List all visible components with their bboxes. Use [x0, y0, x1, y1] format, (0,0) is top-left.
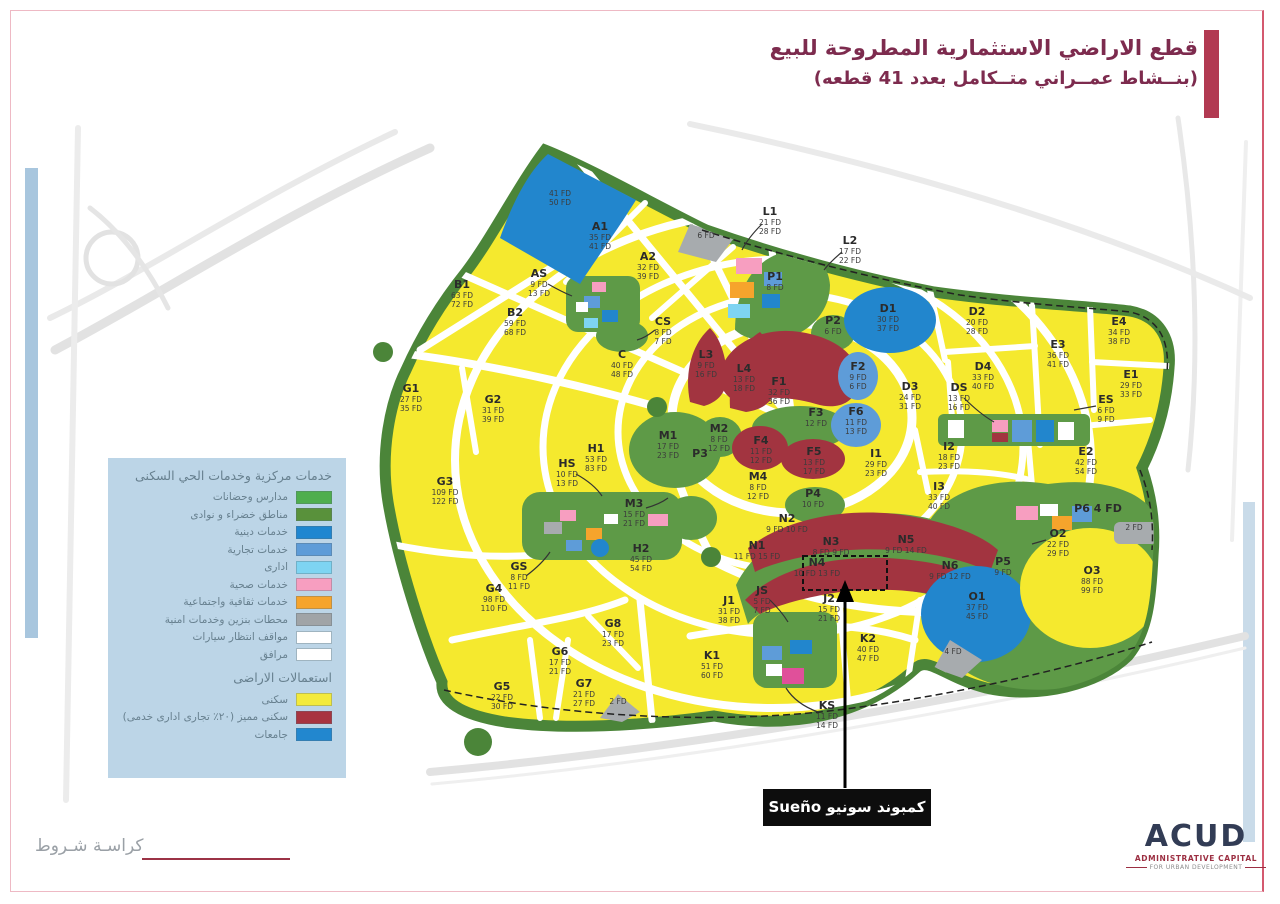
- plot-text: 47 FD: [857, 654, 879, 663]
- plot-text: 31 FD: [899, 402, 921, 411]
- plot-label-M3: M315 FD21 FD: [623, 497, 645, 528]
- plot-text: 29 FD: [1047, 549, 1069, 558]
- plot-text: M2: [710, 422, 729, 435]
- legend-item: مرافق: [120, 648, 332, 661]
- plot-text: 16 FD: [695, 370, 717, 379]
- plot-text: 39 FD: [637, 272, 659, 281]
- plot-text: 17 FD: [657, 442, 679, 451]
- plot-text: HS: [558, 457, 575, 470]
- plot-text: B1: [454, 278, 470, 291]
- plot-text: N1: [749, 539, 766, 552]
- plot-text: K2: [860, 632, 876, 645]
- plot-text: P6 4 FD: [1074, 502, 1122, 515]
- plot-text: 13 FD: [556, 479, 578, 488]
- plot-text: D3: [902, 380, 919, 393]
- plot-text: 38 FD: [718, 616, 740, 625]
- legend-item: سكنى: [120, 693, 332, 706]
- plot-text: 23 FD: [657, 451, 679, 460]
- legend-item: جامعات: [120, 728, 332, 741]
- plot-text: 35 FD: [589, 233, 611, 242]
- color-swatch: [296, 728, 332, 741]
- plot-text: 21 FD: [818, 614, 840, 623]
- plot-text: 53 FD: [585, 455, 607, 464]
- plot-text: D1: [880, 302, 897, 315]
- plot-text: 11 FD: [845, 418, 867, 427]
- plot-label-X2: 2 FD: [609, 697, 626, 706]
- plot-label-GS: GS8 FD11 FD: [508, 560, 530, 591]
- plot-text: 63 FD: [451, 291, 473, 300]
- plot-text: 12 FD: [805, 419, 827, 428]
- legend-section2-header: استعمالات الاراضى: [120, 670, 332, 687]
- plot-text: 37 FD: [877, 324, 899, 333]
- plot-label-G2: G231 FD39 FD: [482, 393, 504, 424]
- acud-logo-line2: FOR URBAN DEVELOPMENT: [1126, 864, 1266, 871]
- plot-label-U1: 41 FD50 FD: [549, 189, 571, 207]
- plot-text: 10 FD: [556, 470, 578, 479]
- plot-text: I1: [870, 447, 882, 460]
- plot-text: D2: [969, 305, 986, 318]
- plot-text: 31 FD: [482, 406, 504, 415]
- plot-text: P3: [692, 447, 708, 460]
- title-line1: قطع الاراضي الاستثمارية المطروحة للبيع: [770, 36, 1198, 60]
- plot-label-A1: A135 FD41 FD: [589, 220, 611, 251]
- plot-label-M2: M28 FD12 FD: [708, 422, 730, 453]
- legend-item: مواقف انتظار سيارات: [120, 631, 332, 644]
- plot-text: 41 FD: [1047, 360, 1069, 369]
- plot-text: 6 FD: [824, 327, 841, 336]
- plot-text: K1: [704, 649, 720, 662]
- plot-text: B2: [507, 306, 523, 319]
- plot-text: 8 FD: [510, 573, 527, 582]
- plot-label-M1: M117 FD23 FD: [657, 429, 679, 460]
- plot-text: L3: [699, 348, 714, 361]
- color-swatch: [296, 561, 332, 574]
- plot-label-K2: K240 FD47 FD: [857, 632, 879, 663]
- plot-text: 6 FD: [849, 382, 866, 391]
- plot-text: 21 FD: [759, 218, 781, 227]
- plot-text: 9 FD 12 FD: [929, 572, 971, 581]
- plot-text: 23 FD: [865, 469, 887, 478]
- plot-label-H2: H245 FD54 FD: [630, 542, 652, 573]
- plot-label-G8: G817 FD23 FD: [602, 617, 624, 648]
- plot-text: M3: [625, 497, 644, 510]
- plot-text: 41 FD: [549, 189, 571, 198]
- legend-item-label: مناطق خضراء و نوادى: [190, 509, 288, 521]
- legend-landuse-items: سكنىسكنى مميز (٢٠٪ تجارى ادارى خدمى)جامع…: [120, 693, 332, 741]
- plot-text: 37 FD: [966, 603, 988, 612]
- legend-services-items: مدارس وحضاناتمناطق خضراء و نوادىخدمات دي…: [120, 491, 332, 662]
- color-swatch: [296, 648, 332, 661]
- plot-text: 23 FD: [938, 462, 960, 471]
- plot-label-ES: ES6 FD9 FD: [1097, 393, 1114, 424]
- page-title: قطع الاراضي الاستثمارية المطروحة للبيع (…: [770, 36, 1198, 89]
- legend-item-label: خدمات ثقافية واجتماعية: [183, 596, 288, 608]
- plot-text: 122 FD: [432, 497, 459, 506]
- plot-text: 99 FD: [1081, 586, 1103, 595]
- plot-text: KS: [819, 699, 836, 712]
- plot-text: G1: [403, 382, 420, 395]
- plot-text: G4: [486, 582, 503, 595]
- plot-text: 22 FD: [839, 256, 861, 265]
- plot-text: 42 FD: [1075, 458, 1097, 467]
- plot-text: 9 FD: [994, 568, 1011, 577]
- legend-item-label: جامعات: [255, 729, 288, 741]
- plot-text: 32 FD: [768, 388, 790, 397]
- plot-label-O1: O137 FD45 FD: [966, 590, 988, 621]
- plot-text: 11 FD 15 FD: [734, 552, 781, 561]
- plot-text: 32 FD: [637, 263, 659, 272]
- legend-item: خدمات دينية: [120, 526, 332, 539]
- plot-text: 14 FD: [816, 721, 838, 730]
- plot-label-X4: 2 FD: [1125, 523, 1142, 532]
- plot-text: E2: [1078, 445, 1093, 458]
- plot-text: G6: [552, 645, 569, 658]
- plot-text: A1: [592, 220, 608, 233]
- plot-text: 6 FD: [1097, 406, 1114, 415]
- plot-text: 34 FD: [1108, 328, 1130, 337]
- plot-text: J1: [722, 594, 735, 607]
- plot-text: 17 FD: [839, 247, 861, 256]
- plot-text: D4: [975, 360, 992, 373]
- plot-text: 11 FD: [750, 447, 772, 456]
- plot-text: 2 FD: [609, 697, 626, 706]
- plot-label-D3: D324 FD31 FD: [899, 380, 921, 411]
- legend-item: خدمات ثقافية واجتماعية: [120, 596, 332, 609]
- plot-text: 13 FD: [803, 458, 825, 467]
- legend-item: سكنى مميز (٢٠٪ تجارى ادارى خدمى): [120, 711, 332, 724]
- plot-text: 22 FD: [1047, 540, 1069, 549]
- acud-logo-line1: ADMINISTRATIVE CAPITAL: [1126, 854, 1266, 863]
- legend-header: خدمات مركزية وخدمات الحي السكنى: [120, 468, 332, 485]
- plot-label-P6: P6 4 FD: [1074, 502, 1122, 515]
- color-swatch: [296, 693, 332, 706]
- plot-text: H1: [588, 442, 605, 455]
- plot-label-HS: HS10 FD13 FD: [556, 457, 578, 488]
- plot-label-P2: P26 FD: [824, 314, 841, 336]
- plot-text: 72 FD: [451, 300, 473, 309]
- plot-label-L1: L121 FD28 FD: [759, 205, 781, 236]
- plot-text: 88 FD: [1081, 577, 1103, 586]
- plot-text: 38 FD: [1108, 337, 1130, 346]
- plot-text: 4 FD: [944, 647, 961, 656]
- plot-text: 40 FD: [611, 361, 633, 370]
- highway-interchange-loop: [86, 232, 138, 284]
- plot-text: 33 FD: [1120, 390, 1142, 399]
- plot-text: 7 FD: [654, 337, 671, 346]
- plot-label-DS: DS13 FD16 FD: [948, 381, 970, 412]
- plot-text: CS: [655, 315, 671, 328]
- plot-text: 12 FD: [708, 444, 730, 453]
- legend-item: ادارى: [120, 561, 332, 574]
- plot-text: 39 FD: [482, 415, 504, 424]
- plot-label-P1: P18 FD: [766, 270, 783, 292]
- footer-signature-line: [142, 858, 290, 860]
- title-line2: (بنــشاط عمــراني متــكامل بعدد 41 قطعه): [770, 68, 1198, 89]
- plot-text: 17 FD: [549, 658, 571, 667]
- plot-text: F3: [808, 406, 823, 419]
- plot-label-G1: G127 FD35 FD: [400, 382, 422, 413]
- plot-label-X3: 4 FD: [944, 647, 961, 656]
- plot-label-H1: H153 FD83 FD: [585, 442, 607, 473]
- color-swatch: [296, 526, 332, 539]
- plot-text: 12 FD: [750, 456, 772, 465]
- plot-text: 28 FD: [759, 227, 781, 236]
- map-legend: خدمات مركزية وخدمات الحي السكنى مدارس وح…: [108, 458, 346, 778]
- plot-text: F4: [753, 434, 769, 447]
- plot-text: GS: [511, 560, 528, 573]
- plot-label-D1: D130 FD37 FD: [877, 302, 899, 333]
- plot-text: L2: [843, 234, 858, 247]
- plot-text: 109 FD: [432, 488, 459, 497]
- footer-booklet-text: كراسـة شـروط: [35, 836, 143, 856]
- plot-text: M1: [659, 429, 678, 442]
- plot-text: 13 FD: [528, 289, 550, 298]
- plot-text: O3: [1083, 564, 1100, 577]
- plot-text: 30 FD: [491, 702, 513, 711]
- plot-label-G6: G617 FD21 FD: [549, 645, 571, 676]
- plot-label-M4: M48 FD12 FD: [747, 470, 769, 501]
- plot-text: 8 FD: [710, 435, 727, 444]
- plot-text: 13 FD: [845, 427, 867, 436]
- plot-text: L1: [763, 205, 778, 218]
- plot-text: AS: [531, 267, 548, 280]
- plot-text: 54 FD: [630, 564, 652, 573]
- legend-item: خدمات صحية: [120, 578, 332, 591]
- legend-item-label: محطات بنزين وخدمات امنية: [165, 614, 288, 626]
- plot-text: 9 FD: [530, 280, 547, 289]
- legend-item-label: خدمات تجارية: [227, 544, 288, 556]
- plot-text: 35 FD: [400, 404, 422, 413]
- plot-text: 40 FD: [857, 645, 879, 654]
- plot-label-K1: K151 FD60 FD: [701, 649, 723, 680]
- plot-text: E3: [1050, 338, 1065, 351]
- plot-text: F2: [850, 360, 865, 373]
- plot-text: 16 FD: [948, 403, 970, 412]
- plot-text: G2: [485, 393, 502, 406]
- color-swatch: [296, 543, 332, 556]
- plot-text: 60 FD: [701, 671, 723, 680]
- plot-text: G5: [494, 680, 511, 693]
- plot-label-X1: 6 FD: [697, 231, 714, 240]
- legend-item-label: مدارس وحضانات: [213, 491, 288, 503]
- plot-text: 13 FD: [733, 375, 755, 384]
- plot-text: 36 FD: [768, 397, 790, 406]
- plot-text: 83 FD: [585, 464, 607, 473]
- plot-text: 21 FD: [573, 690, 595, 699]
- plot-text: 12 FD: [747, 492, 769, 501]
- color-swatch: [296, 491, 332, 504]
- plot-label-P3: P3: [692, 447, 708, 460]
- plot-text: N6: [942, 559, 959, 572]
- color-swatch: [296, 711, 332, 724]
- plot-label-D4: D433 FD40 FD: [972, 360, 994, 391]
- plot-text: J2: [822, 592, 835, 605]
- plot-text: 21 FD: [623, 519, 645, 528]
- plot-text: 13 FD: [948, 394, 970, 403]
- plot-text: 15 FD: [818, 605, 840, 614]
- plot-label-B1: B163 FD72 FD: [451, 278, 473, 309]
- legend-item-label: سكنى: [261, 694, 288, 706]
- plot-text: 9 FD: [1097, 415, 1114, 424]
- acud-logo-line2-text: FOR URBAN DEVELOPMENT: [1150, 864, 1243, 871]
- plot-text: 9 FD: [697, 361, 714, 370]
- plot-text: 9 FD: [849, 373, 866, 382]
- plot-text: 17 FD: [602, 630, 624, 639]
- plot-text: 40 FD: [972, 382, 994, 391]
- plot-text: 18 FD: [733, 384, 755, 393]
- plot-text: 18 FD: [938, 453, 960, 462]
- plot-text: N2: [779, 512, 796, 525]
- plot-text: 11 FD: [508, 582, 530, 591]
- plot-label-KS: KS11 FD14 FD: [816, 699, 838, 730]
- legend-item-label: ادارى: [264, 561, 288, 573]
- plot-text: 54 FD: [1075, 467, 1097, 476]
- plot-text: 45 FD: [630, 555, 652, 564]
- scanned-masterplan-page: 41 FD50 FDA135 FD41 FDA232 FD39 FDAS9 FD…: [0, 0, 1280, 904]
- plot-text: C: [618, 348, 626, 361]
- plot-text: 24 FD: [899, 393, 921, 402]
- plot-text: I3: [933, 480, 945, 493]
- plot-text: 9 FD 10 FD: [766, 525, 808, 534]
- plot-text: 28 FD: [966, 327, 988, 336]
- plot-text: 59 FD: [504, 319, 526, 328]
- plot-text: 7 FD: [753, 606, 770, 615]
- plot-text: G7: [576, 677, 593, 690]
- plot-text: 27 FD: [400, 395, 422, 404]
- plot-text: P5: [995, 555, 1011, 568]
- legend-item-label: مرافق: [260, 649, 288, 661]
- plot-text: 48 FD: [611, 370, 633, 379]
- plot-text: 9 FD 14 FD: [885, 546, 927, 555]
- plot-label-AS: AS9 FD13 FD: [528, 267, 550, 298]
- legend-item-label: خدمات دينية: [234, 526, 288, 538]
- acud-logo: ACUD ADMINISTRATIVE CAPITAL FOR URBAN DE…: [1126, 822, 1266, 871]
- color-swatch: [296, 596, 332, 609]
- plot-label-A2: A232 FD39 FD: [637, 250, 659, 281]
- plot-text: P4: [805, 487, 821, 500]
- plot-label-G7: G721 FD27 FD: [573, 677, 595, 708]
- plot-label-CS: CS8 FD7 FD: [654, 315, 671, 346]
- plot-label-D2: D220 FD28 FD: [966, 305, 988, 336]
- plot-text: 23 FD: [602, 639, 624, 648]
- plot-text: 10 FD: [802, 500, 824, 509]
- compound-label: كمبوند سونيو Sueño: [763, 789, 931, 826]
- plot-text: F1: [771, 375, 786, 388]
- acud-logo-wordmark: ACUD: [1126, 822, 1266, 852]
- plot-text: 41 FD: [589, 242, 611, 251]
- plot-text: 17 FD: [803, 467, 825, 476]
- plot-text: 5 FD: [753, 597, 770, 606]
- plot-text: G3: [437, 475, 454, 488]
- plot-label-L2: L217 FD22 FD: [839, 234, 861, 265]
- plot-text: 110 FD: [481, 604, 508, 613]
- color-swatch: [296, 631, 332, 644]
- plot-text: 20 FD: [966, 318, 988, 327]
- plot-text: 15 FD: [623, 510, 645, 519]
- plot-text: 98 FD: [483, 595, 505, 604]
- plot-text: 6 FD: [697, 231, 714, 240]
- legend-item: مناطق خضراء و نوادى: [120, 508, 332, 521]
- plot-text: H2: [633, 542, 650, 555]
- plot-text: 40 FD: [928, 502, 950, 511]
- plot-text: 2 FD: [1125, 523, 1142, 532]
- plot-text: DS: [950, 381, 967, 394]
- color-swatch: [296, 508, 332, 521]
- plot-text: 8 FD: [654, 328, 671, 337]
- plot-text: N4: [809, 556, 826, 569]
- legend-item: خدمات تجارية: [120, 543, 332, 556]
- plot-text: 68 FD: [504, 328, 526, 337]
- plot-label-P5: P59 FD: [994, 555, 1011, 577]
- plot-text: JS: [755, 584, 768, 597]
- plot-text: P2: [825, 314, 841, 327]
- plot-text: N5: [898, 533, 915, 546]
- plot-text: O2: [1049, 527, 1066, 540]
- plot-text: 51 FD: [701, 662, 723, 671]
- plot-text: E1: [1123, 368, 1138, 381]
- legend-item-label: مواقف انتظار سيارات: [193, 631, 288, 643]
- plot-label-B2: B259 FD68 FD: [504, 306, 526, 337]
- plot-text: 50 FD: [549, 198, 571, 207]
- plot-text: G8: [605, 617, 622, 630]
- plot-text: M4: [749, 470, 768, 483]
- plot-text: 31 FD: [718, 607, 740, 616]
- plot-text: 21 FD: [549, 667, 571, 676]
- plot-text: F6: [848, 405, 864, 418]
- plot-text: 29 FD: [1120, 381, 1142, 390]
- plot-label-G5: G522 FD30 FD: [491, 680, 513, 711]
- plot-text: 22 FD: [491, 693, 513, 702]
- plot-text: 8 FD: [749, 483, 766, 492]
- plot-text: ES: [1098, 393, 1114, 406]
- color-swatch: [296, 613, 332, 626]
- color-swatch: [296, 578, 332, 591]
- plot-text: P1: [767, 270, 783, 283]
- plot-text: 8 FD: [766, 283, 783, 292]
- plot-label-O3: O388 FD99 FD: [1081, 564, 1103, 595]
- legend-item: محطات بنزين وخدمات امنية: [120, 613, 332, 626]
- plot-text: O1: [968, 590, 985, 603]
- plot-text: N3: [823, 535, 840, 548]
- plot-text: 10 FD 13 FD: [794, 569, 841, 578]
- legend-item-label: سكنى مميز (٢٠٪ تجارى ادارى خدمى): [123, 711, 288, 723]
- plot-text: A2: [640, 250, 656, 263]
- plot-text: L4: [737, 362, 752, 375]
- legend-item: مدارس وحضانات: [120, 491, 332, 504]
- plot-text: F5: [806, 445, 821, 458]
- plot-label-F2: F29 FD6 FD: [849, 360, 866, 391]
- plot-text: 27 FD: [573, 699, 595, 708]
- title-accent-bar: [1204, 30, 1219, 118]
- legend-item-label: خدمات صحية: [229, 579, 288, 591]
- plot-text: 29 FD: [865, 460, 887, 469]
- plot-text: E4: [1111, 315, 1127, 328]
- plot-text: 30 FD: [877, 315, 899, 324]
- plot-text: I2: [943, 440, 955, 453]
- plot-text: 11 FD: [816, 712, 838, 721]
- plot-label-O2: O222 FD29 FD: [1047, 527, 1069, 558]
- plot-text: 33 FD: [928, 493, 950, 502]
- plot-text: 45 FD: [966, 612, 988, 621]
- plot-text: 36 FD: [1047, 351, 1069, 360]
- plot-text: 33 FD: [972, 373, 994, 382]
